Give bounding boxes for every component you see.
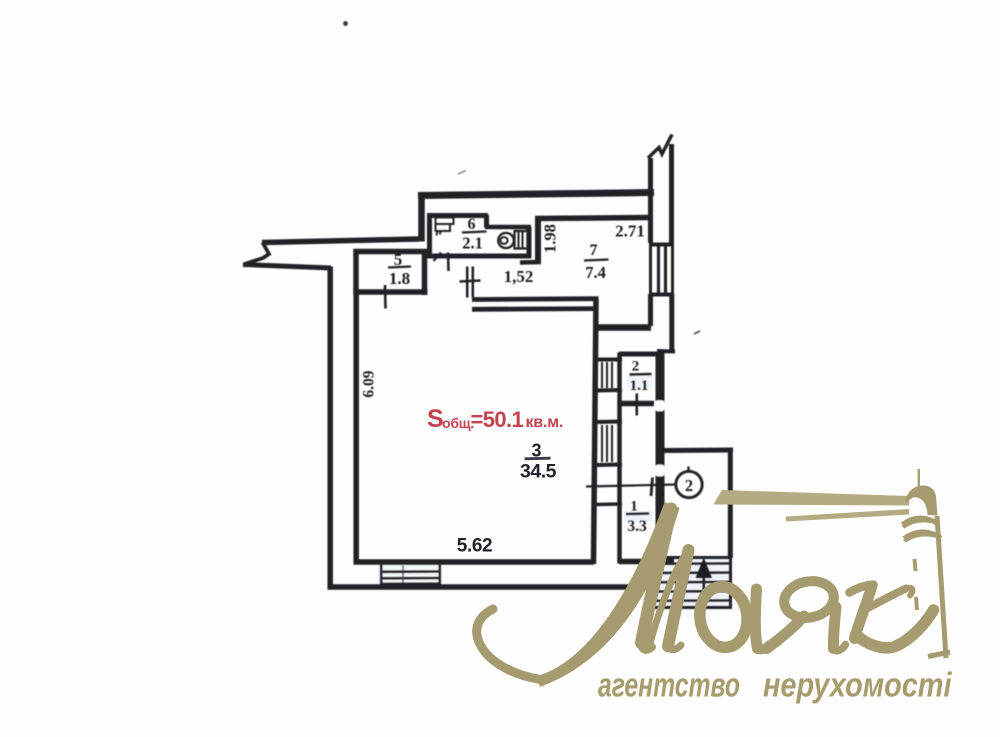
- svg-text:5.62: 5.62: [457, 536, 492, 557]
- svg-text:6: 6: [468, 216, 476, 233]
- svg-text:1.98: 1.98: [541, 224, 560, 253]
- svg-text:2.71: 2.71: [615, 222, 645, 241]
- svg-text:1.1: 1.1: [630, 378, 649, 394]
- svg-text:7: 7: [590, 242, 598, 259]
- svg-text:=50.1: =50.1: [471, 407, 524, 432]
- svg-text:нерухомості: нерухомості: [763, 667, 953, 705]
- svg-text:2.1: 2.1: [462, 234, 483, 253]
- svg-text:7.4: 7.4: [585, 263, 606, 282]
- svg-text:1,52: 1,52: [504, 267, 534, 286]
- svg-text:34.5: 34.5: [520, 461, 557, 483]
- svg-text:6.09: 6.09: [361, 370, 378, 397]
- svg-text:2: 2: [685, 476, 693, 495]
- svg-text:общ.: общ.: [442, 415, 474, 431]
- svg-text:1.8: 1.8: [389, 269, 410, 288]
- svg-text:2: 2: [632, 359, 640, 375]
- svg-text:1: 1: [630, 499, 638, 515]
- svg-text:3.3: 3.3: [627, 518, 647, 535]
- svg-text:агентство: агентство: [598, 667, 740, 705]
- svg-text:кв.м.: кв.м.: [526, 414, 564, 431]
